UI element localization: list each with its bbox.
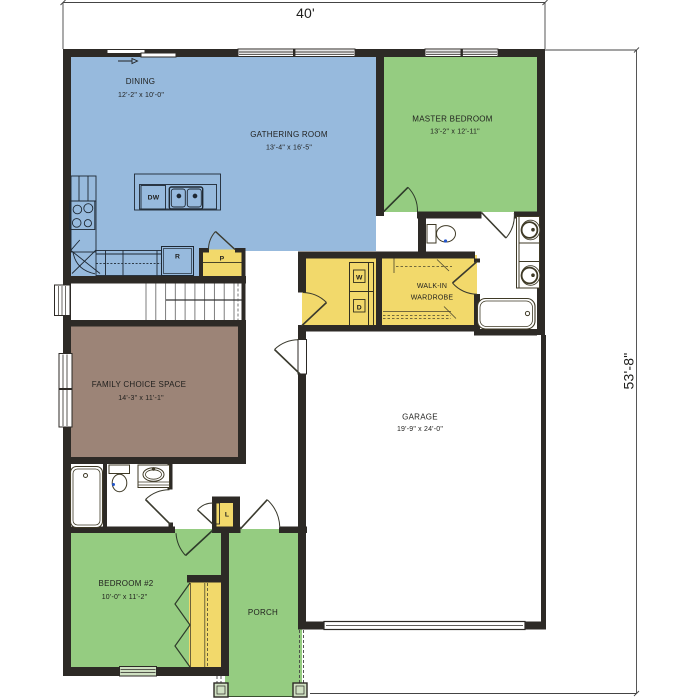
svg-text:L: L <box>225 512 229 519</box>
svg-text:19'-9" x 24'-0": 19'-9" x 24'-0" <box>397 426 443 433</box>
svg-text:DW: DW <box>148 195 160 202</box>
svg-text:12'-2" x 10'-0": 12'-2" x 10'-0" <box>118 92 164 99</box>
svg-text:GARAGE: GARAGE <box>402 413 438 422</box>
svg-text:DINING: DINING <box>126 77 156 86</box>
svg-text:14'-3" x 11'-1": 14'-3" x 11'-1" <box>118 395 164 402</box>
svg-text:BEDROOM #2: BEDROOM #2 <box>99 579 154 588</box>
svg-text:R: R <box>175 254 180 261</box>
svg-text:10'-0" x 11'-2": 10'-0" x 11'-2" <box>102 594 148 601</box>
svg-text:W: W <box>356 275 363 282</box>
svg-text:13'-4" x 16'-5": 13'-4" x 16'-5" <box>266 145 312 152</box>
svg-text:WARDROBE: WARDROBE <box>411 295 454 302</box>
svg-text:13'-2" x 12'-11": 13'-2" x 12'-11" <box>430 129 480 136</box>
svg-text:P: P <box>220 256 225 263</box>
svg-text:53'-8": 53'-8" <box>621 353 637 390</box>
svg-text:PORCH: PORCH <box>248 608 278 617</box>
svg-text:D: D <box>357 304 362 311</box>
svg-text:WALK-IN: WALK-IN <box>417 283 447 290</box>
svg-text:GATHERING ROOM: GATHERING ROOM <box>250 130 328 139</box>
svg-text:40': 40' <box>296 5 315 21</box>
svg-text:MASTER BEDROOM: MASTER BEDROOM <box>412 115 492 124</box>
svg-text:FAMILY CHOICE SPACE: FAMILY CHOICE SPACE <box>92 380 187 389</box>
